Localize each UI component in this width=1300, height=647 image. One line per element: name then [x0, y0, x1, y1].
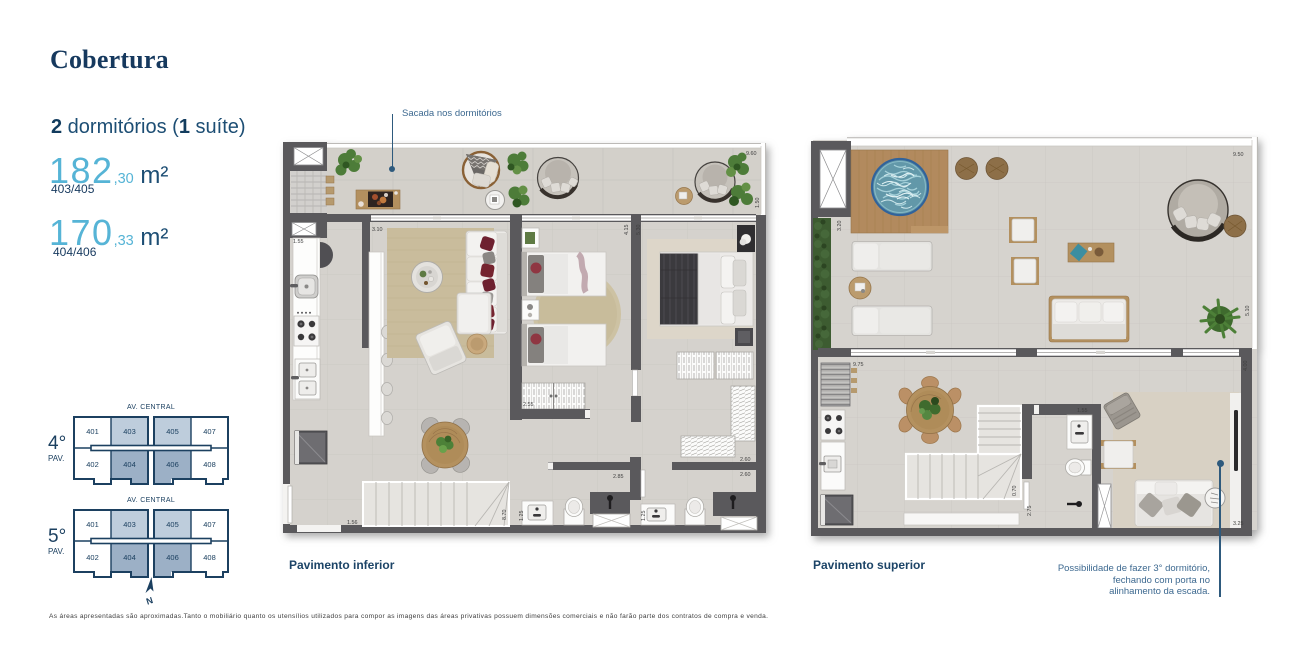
svg-text:2.60: 2.60 — [740, 472, 751, 478]
svg-text:0.70: 0.70 — [1012, 486, 1018, 497]
svg-text:407: 407 — [203, 520, 216, 529]
svg-text:3.25: 3.25 — [1233, 521, 1244, 527]
svg-text:3.10: 3.10 — [372, 227, 383, 233]
svg-text:1.55: 1.55 — [1077, 408, 1088, 414]
svg-text:3.20: 3.20 — [837, 221, 843, 232]
svg-text:4.15: 4.15 — [624, 225, 630, 236]
svg-text:N: N — [145, 595, 154, 607]
svg-text:1.56: 1.56 — [347, 520, 358, 526]
svg-text:404: 404 — [123, 460, 136, 469]
svg-text:405: 405 — [166, 520, 179, 529]
svg-text:1.25: 1.25 — [519, 511, 525, 522]
svg-text:406: 406 — [166, 553, 179, 562]
svg-text:4°: 4° — [48, 433, 66, 454]
svg-text:2.55: 2.55 — [523, 402, 534, 408]
svg-text:404: 404 — [123, 553, 136, 562]
svg-text:407: 407 — [203, 427, 216, 436]
svg-text:AV. CENTRAL: AV. CENTRAL — [127, 497, 175, 504]
svg-text:4.00: 4.00 — [1243, 361, 1249, 372]
svg-text:401: 401 — [86, 427, 99, 436]
svg-text:403: 403 — [123, 427, 136, 436]
svg-text:402: 402 — [86, 460, 99, 469]
svg-text:405: 405 — [166, 427, 179, 436]
svg-text:408: 408 — [203, 553, 216, 562]
svg-text:1.55: 1.55 — [293, 239, 304, 245]
svg-text:1.50: 1.50 — [755, 198, 761, 209]
svg-text:1.25: 1.25 — [641, 511, 647, 522]
svg-text:5.10: 5.10 — [1245, 306, 1251, 317]
svg-text:AV. CENTRAL: AV. CENTRAL — [127, 404, 175, 411]
svg-text:402: 402 — [86, 553, 99, 562]
svg-text:2.75: 2.75 — [1027, 506, 1033, 517]
svg-text:PAV.: PAV. — [48, 547, 64, 556]
svg-text:5.30: 5.30 — [636, 225, 642, 236]
svg-text:5°: 5° — [48, 526, 66, 547]
svg-text:401: 401 — [86, 520, 99, 529]
svg-text:403: 403 — [123, 520, 136, 529]
svg-text:PAV.: PAV. — [48, 454, 64, 463]
svg-text:2.85: 2.85 — [613, 474, 624, 480]
svg-text:2.60: 2.60 — [740, 457, 751, 463]
svg-text:408: 408 — [203, 460, 216, 469]
svg-text:9.50: 9.50 — [1233, 152, 1244, 158]
svg-text:9.60: 9.60 — [746, 151, 757, 157]
svg-text:8.70: 8.70 — [502, 510, 508, 521]
svg-text:406: 406 — [166, 460, 179, 469]
svg-text:9.75: 9.75 — [853, 362, 864, 368]
